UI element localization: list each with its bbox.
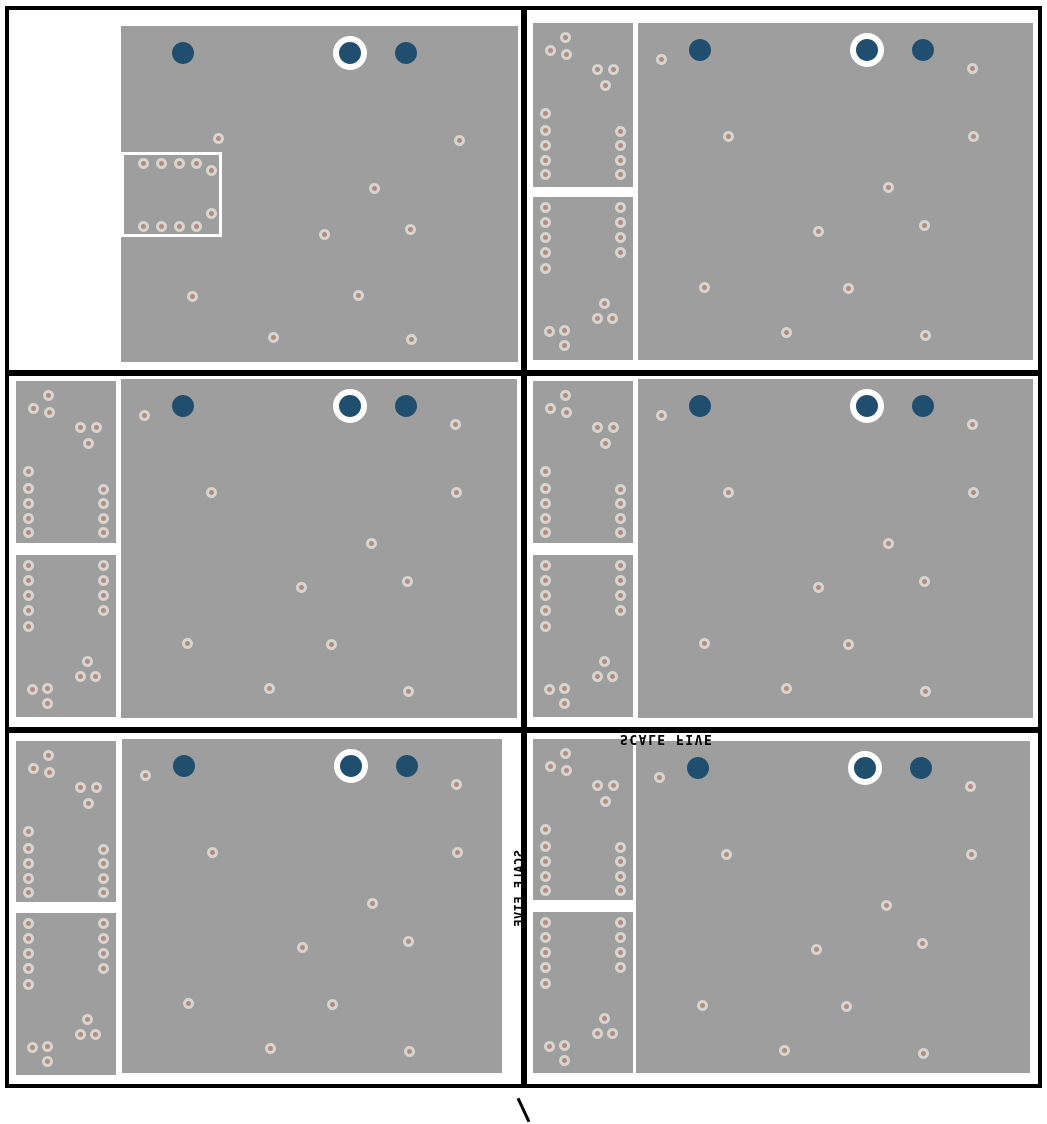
via-pad: [615, 962, 626, 973]
via-pad: [540, 885, 551, 896]
via-pad: [615, 885, 626, 896]
via-pad: [592, 780, 603, 791]
via-pad: [559, 1040, 570, 1051]
via-pad: [697, 1000, 708, 1011]
via-pad: [615, 871, 626, 882]
scale-label-vertical-text: SCALE FIVE: [512, 850, 521, 927]
via-pad: [721, 849, 732, 860]
via-pad: [966, 849, 977, 860]
panel-vertical-divider: [521, 6, 527, 1088]
via-pad: [918, 1048, 929, 1059]
plated-hole: [910, 757, 932, 779]
via-pad: [545, 761, 556, 772]
via-pad: [615, 917, 626, 928]
panel-horizontal-divider-2: [5, 727, 1042, 733]
plated-hole: [687, 757, 709, 779]
via-pad: [540, 917, 551, 928]
scale-label-vertical: SCALE FIVE: [504, 850, 521, 954]
gerber-panel-view: SCALE FIVE SCALE FIVE: [0, 0, 1047, 1124]
via-pad: [811, 944, 822, 955]
via-pad: [540, 841, 551, 852]
via-pad: [607, 1028, 618, 1039]
plated-hole-ringed: [848, 751, 882, 785]
via-pad: [615, 856, 626, 867]
via-pad: [540, 978, 551, 989]
via-pad: [599, 1013, 610, 1024]
via-pad: [561, 765, 572, 776]
via-pad: [540, 932, 551, 943]
via-pad: [540, 871, 551, 882]
via-pad: [615, 842, 626, 853]
via-pad: [841, 1001, 852, 1012]
via-pad: [965, 781, 976, 792]
via-pad: [779, 1045, 790, 1056]
via-pad: [917, 938, 928, 949]
via-pad: [615, 947, 626, 958]
via-pad: [544, 1041, 555, 1052]
via-pad: [540, 824, 551, 835]
scale-label-horizontal: SCALE FIVE: [620, 733, 713, 744]
via-pad: [540, 947, 551, 958]
via-pad: [560, 748, 571, 759]
via-pad: [608, 780, 619, 791]
via-pad: [592, 1028, 603, 1039]
via-pad: [600, 796, 611, 807]
scale-label-horizontal-text: SCALE FIVE: [620, 731, 713, 746]
via-pad: [654, 772, 665, 783]
via-pad: [615, 932, 626, 943]
via-pad: [540, 856, 551, 867]
via-pad: [540, 962, 551, 973]
panel-horizontal-divider-1: [5, 370, 1042, 376]
via-pad: [881, 900, 892, 911]
via-pad: [559, 1055, 570, 1066]
